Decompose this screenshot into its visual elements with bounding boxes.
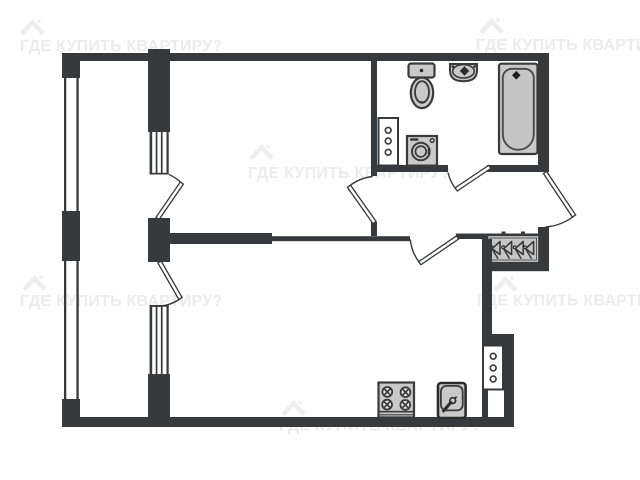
svg-text:ГДЕ КУПИТЬ КВАРТИРУ?: ГДЕ КУПИТЬ КВАРТИРУ?	[20, 293, 223, 310]
svg-text:ГДЕ КУПИТЬ КВАРТИРУ?: ГДЕ КУПИТЬ КВАРТИРУ?	[476, 37, 640, 54]
svg-text:ГДЕ КУПИТЬ КВАРТИРУ?: ГДЕ КУПИТЬ КВАРТИРУ?	[477, 293, 640, 310]
svg-text:ГДЕ КУПИТЬ КВАРТИРУ?: ГДЕ КУПИТЬ КВАРТИРУ?	[20, 38, 223, 55]
